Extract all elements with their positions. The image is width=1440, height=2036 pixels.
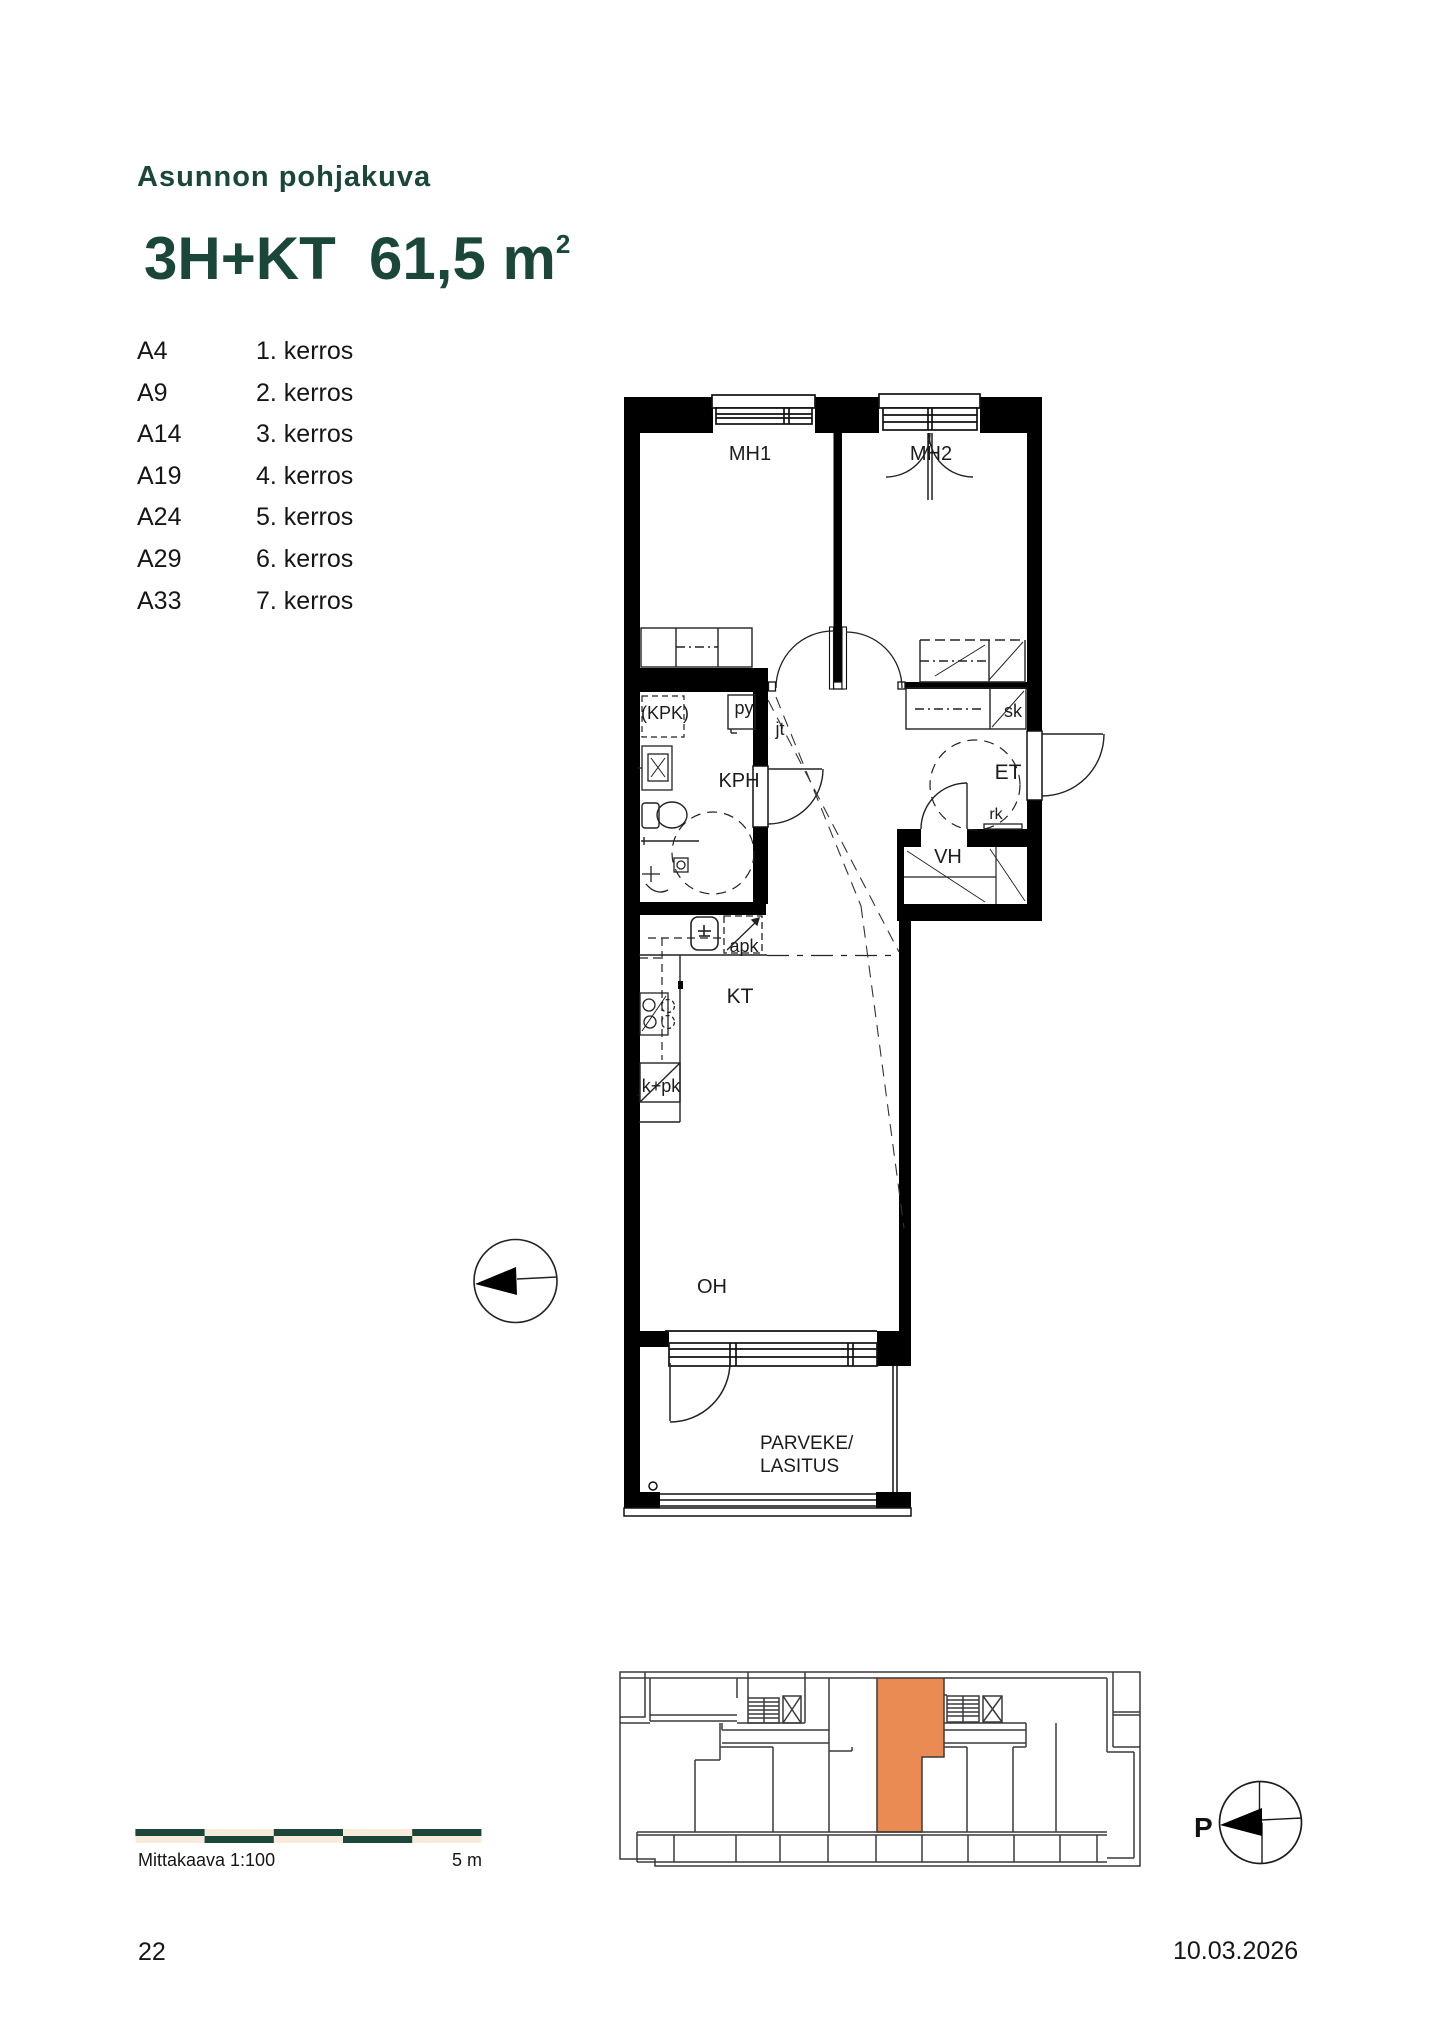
svg-text:VH: VH (934, 846, 962, 868)
svg-text:MH1: MH1 (729, 443, 771, 465)
svg-text:LASITUS: LASITUS (760, 1456, 839, 1477)
svg-text:ET: ET (995, 761, 1022, 784)
svg-text:rk: rk (989, 806, 1003, 823)
svg-text:apk: apk (729, 936, 759, 956)
svg-text:PARVEKE/: PARVEKE/ (760, 1433, 854, 1454)
svg-text:KT: KT (727, 985, 754, 1008)
svg-text:OH: OH (697, 1276, 727, 1298)
svg-text:py: py (734, 698, 753, 718)
svg-text:P: P (1194, 1812, 1213, 1843)
svg-text:sk: sk (1004, 701, 1023, 721)
svg-text:(KPK): (KPK) (641, 703, 689, 723)
svg-text:MH2: MH2 (910, 443, 952, 465)
svg-text:KPH: KPH (718, 770, 759, 792)
svg-text:jk+pk: jk+pk (637, 1076, 682, 1096)
svg-text:jt: jt (775, 719, 785, 739)
